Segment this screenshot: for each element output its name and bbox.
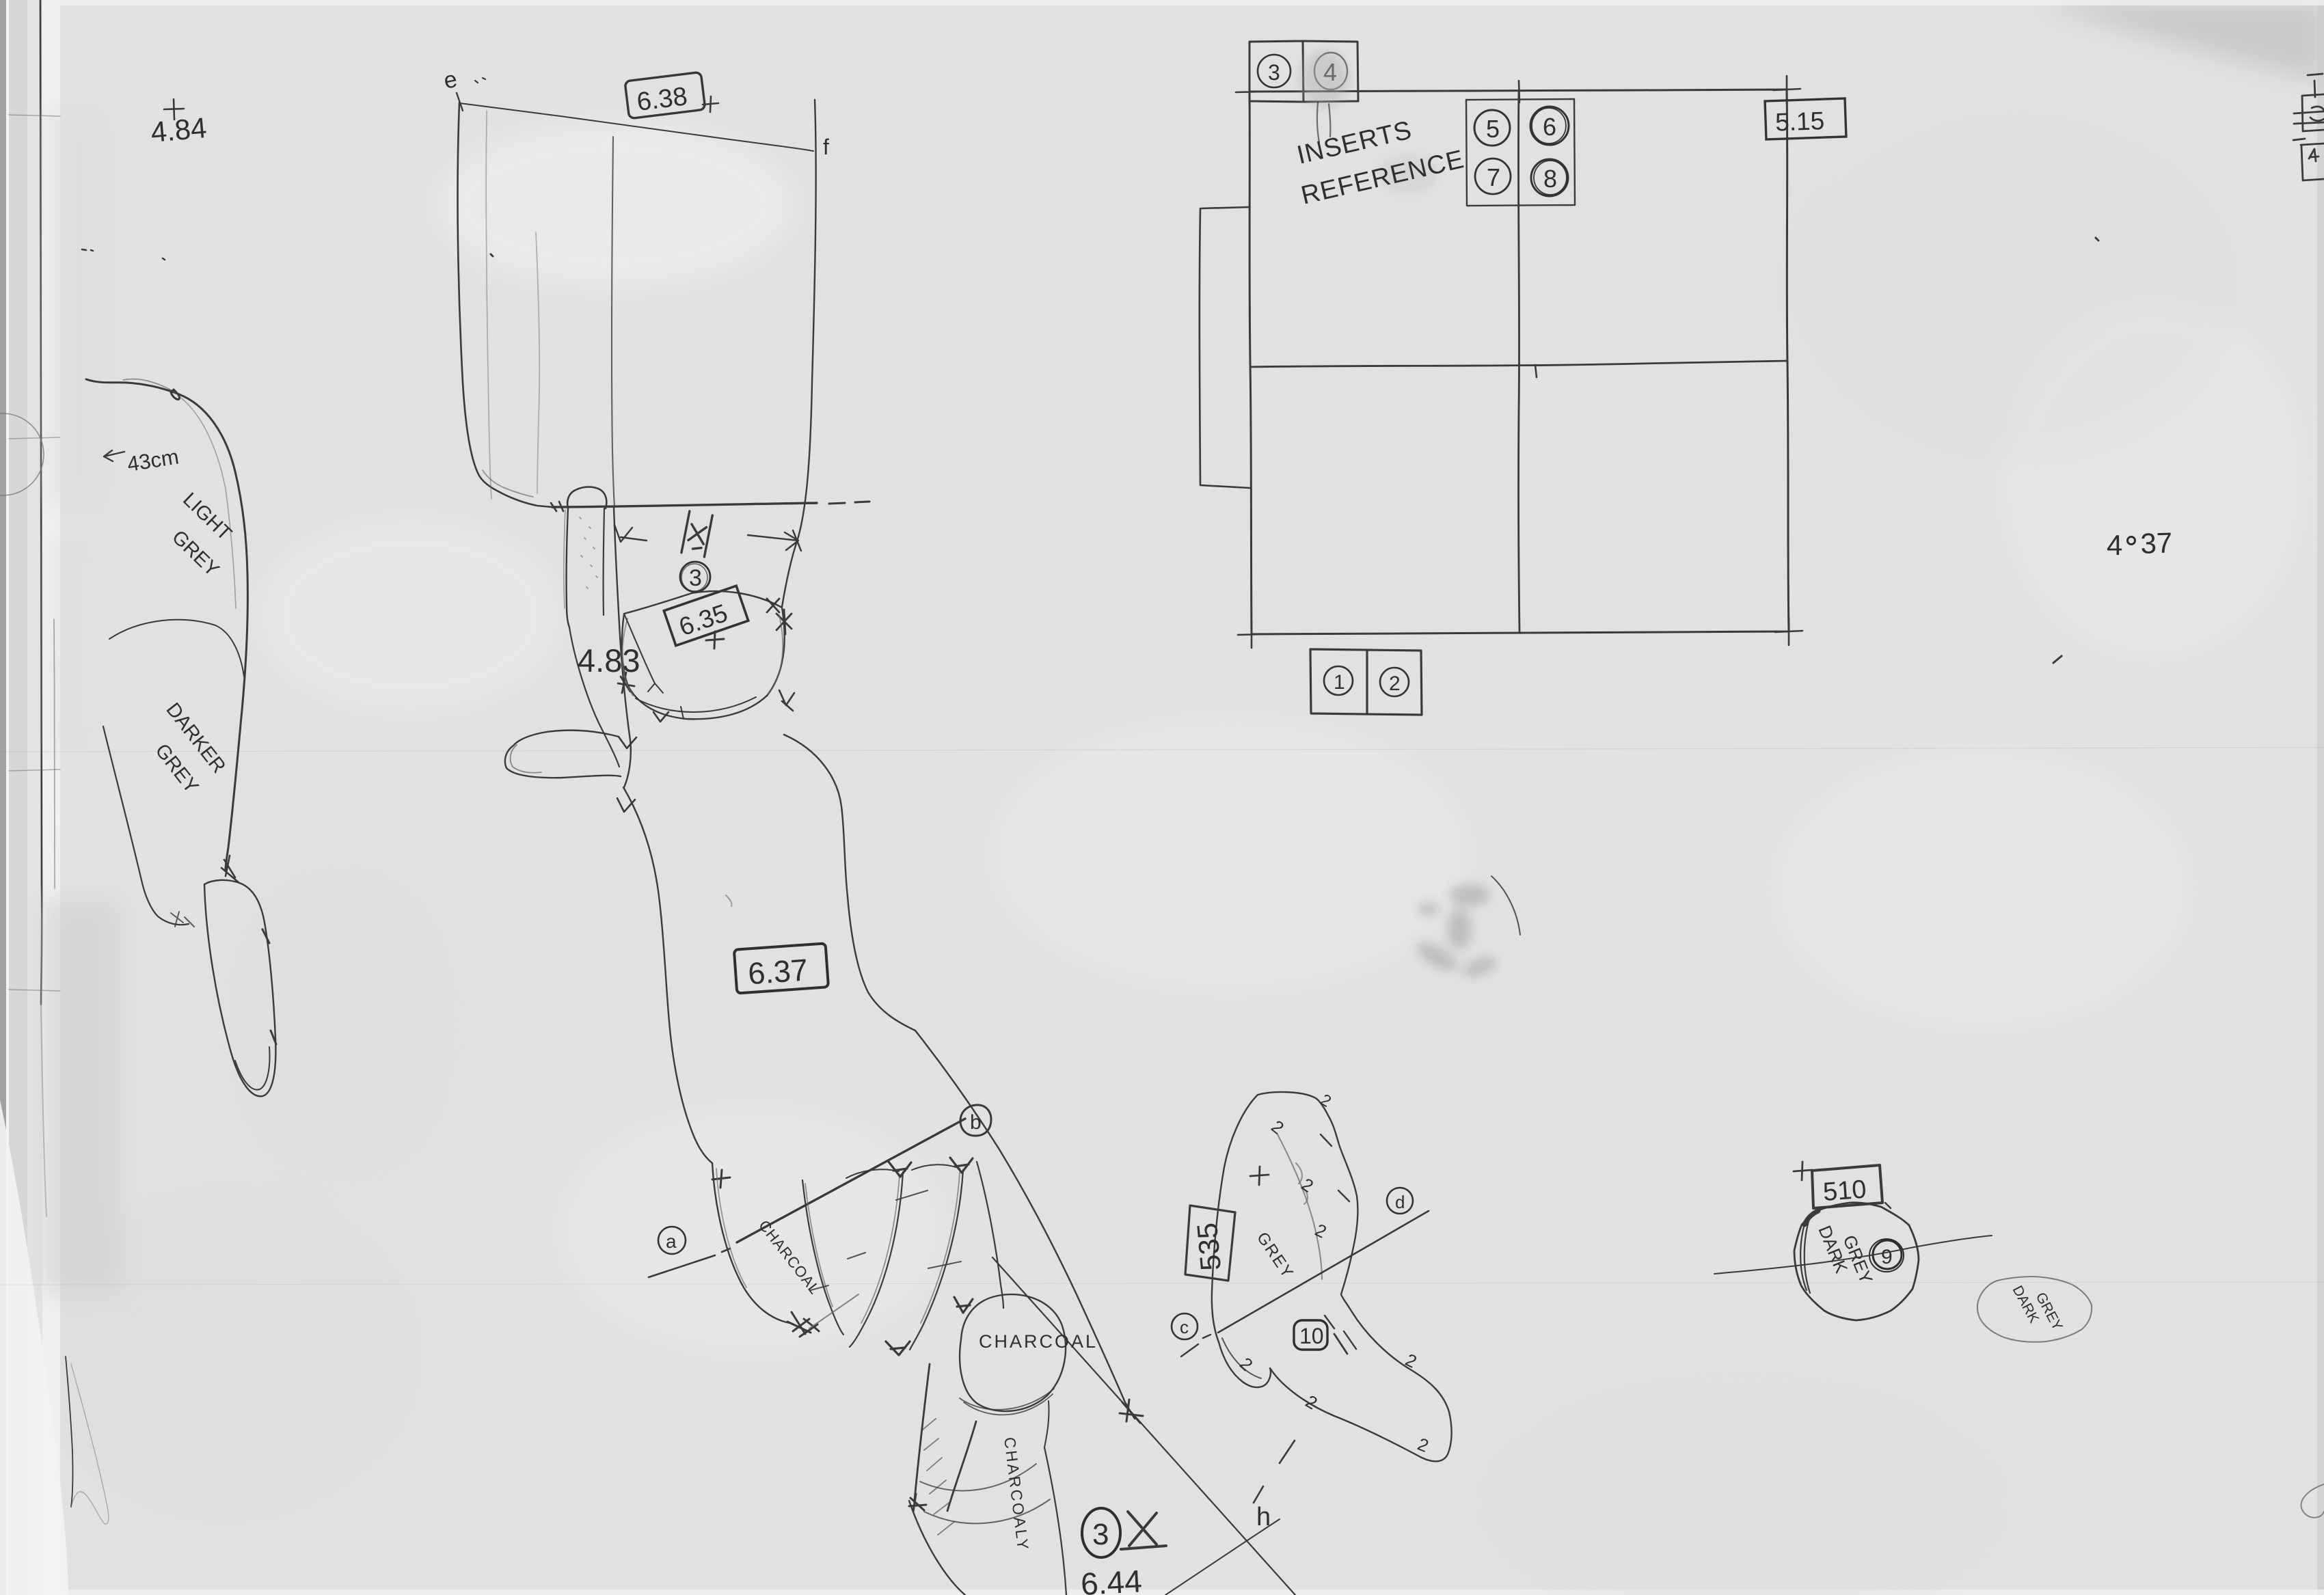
svg-text:5.15: 5.15 — [1774, 107, 1824, 136]
svg-text:37: 37 — [2140, 526, 2173, 560]
svg-text:3: 3 — [1268, 60, 1280, 85]
svg-text:6.38: 6.38 — [635, 82, 689, 117]
svg-text:3: 3 — [689, 565, 702, 591]
svg-text:3: 3 — [1092, 1518, 1109, 1551]
svg-text:6: 6 — [1543, 113, 1556, 141]
svg-text:h: h — [1256, 1503, 1271, 1531]
svg-text:7: 7 — [1487, 163, 1500, 191]
svg-text:CHARCOAL: CHARCOAL — [979, 1331, 1098, 1352]
svg-text:10: 10 — [1299, 1324, 1324, 1348]
svg-text:d: d — [1395, 1192, 1405, 1212]
svg-text:4: 4 — [2107, 529, 2122, 561]
svg-text:4.84: 4.84 — [150, 111, 208, 148]
svg-text:2: 2 — [1389, 672, 1401, 695]
svg-text:5: 5 — [1486, 115, 1500, 143]
svg-text:4.83: 4.83 — [578, 642, 640, 679]
svg-text:6.37: 6.37 — [747, 952, 809, 991]
svg-text:8: 8 — [1543, 165, 1557, 193]
svg-text:535: 535 — [1191, 1221, 1227, 1272]
svg-text:1: 1 — [1334, 671, 1345, 694]
svg-text:6.44: 6.44 — [1080, 1563, 1143, 1595]
svg-text:c: c — [1180, 1317, 1189, 1337]
svg-text:a: a — [666, 1231, 677, 1252]
svg-text:9: 9 — [1881, 1246, 1893, 1268]
svg-text:b: b — [970, 1111, 982, 1134]
svg-text:f: f — [823, 135, 829, 159]
